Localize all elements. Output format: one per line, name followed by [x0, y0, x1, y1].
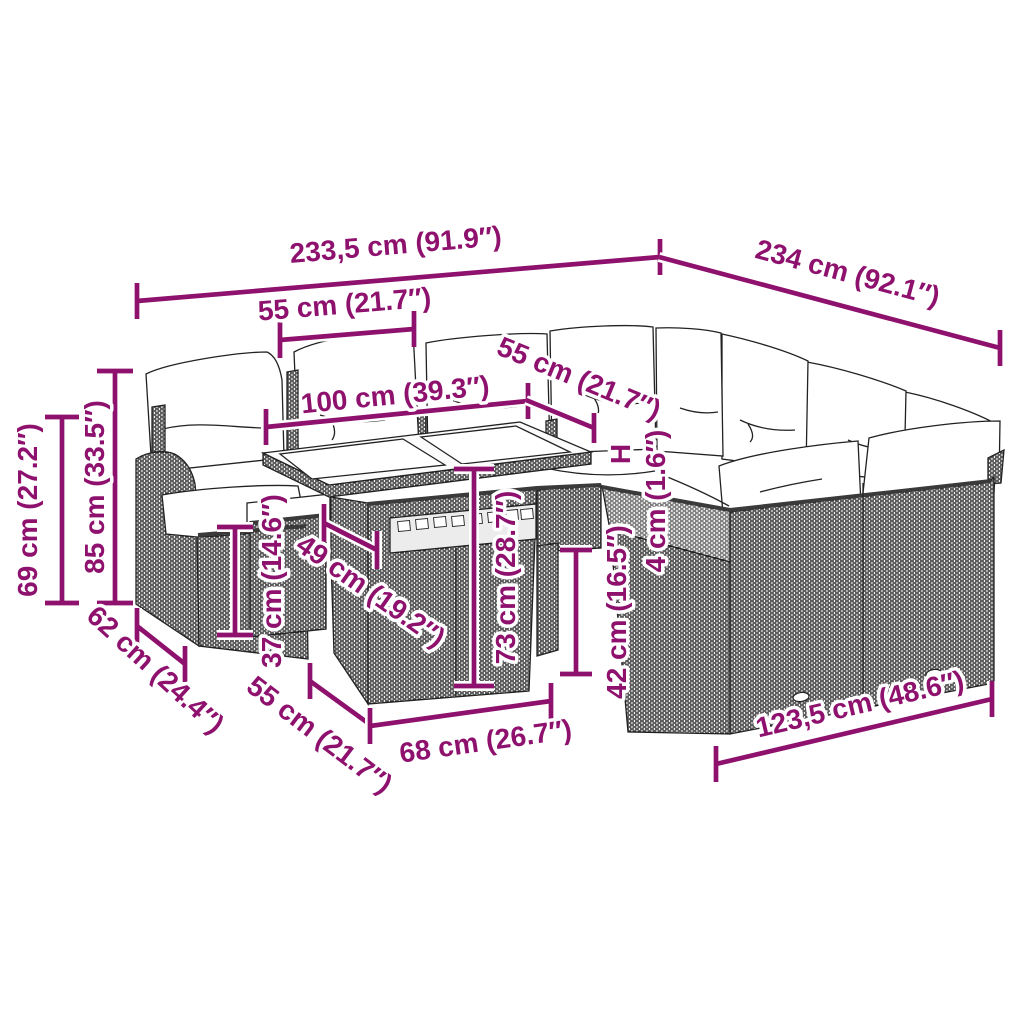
svg-text:4 cm (1.6″): 4 cm (1.6″)	[640, 430, 671, 573]
svg-text:73 cm (28.7″): 73 cm (28.7″)	[490, 491, 521, 665]
svg-text:37 cm (14.6″): 37 cm (14.6″)	[256, 494, 287, 668]
svg-text:H: H	[605, 444, 636, 464]
svg-text:85 cm (33.5″): 85 cm (33.5″)	[79, 400, 110, 574]
svg-text:69 cm (27.2″): 69 cm (27.2″)	[12, 423, 43, 597]
svg-text:42 cm (16.5″): 42 cm (16.5″)	[601, 525, 632, 699]
